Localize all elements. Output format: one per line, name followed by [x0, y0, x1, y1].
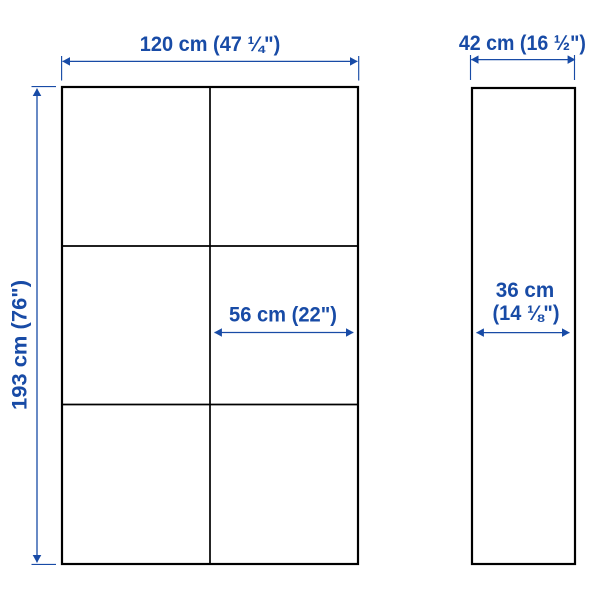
svg-text:193 cm (76"): 193 cm (76") — [9, 280, 32, 410]
svg-text:42 cm (16 ½"): 42 cm (16 ½") — [459, 32, 586, 55]
svg-text:(14 ⅛"): (14 ⅛") — [493, 302, 560, 325]
svg-text:56 cm (22"): 56 cm (22") — [229, 304, 337, 327]
svg-text:120 cm (47 ¼"): 120 cm (47 ¼") — [140, 33, 281, 56]
svg-text:36 cm: 36 cm — [496, 279, 555, 302]
